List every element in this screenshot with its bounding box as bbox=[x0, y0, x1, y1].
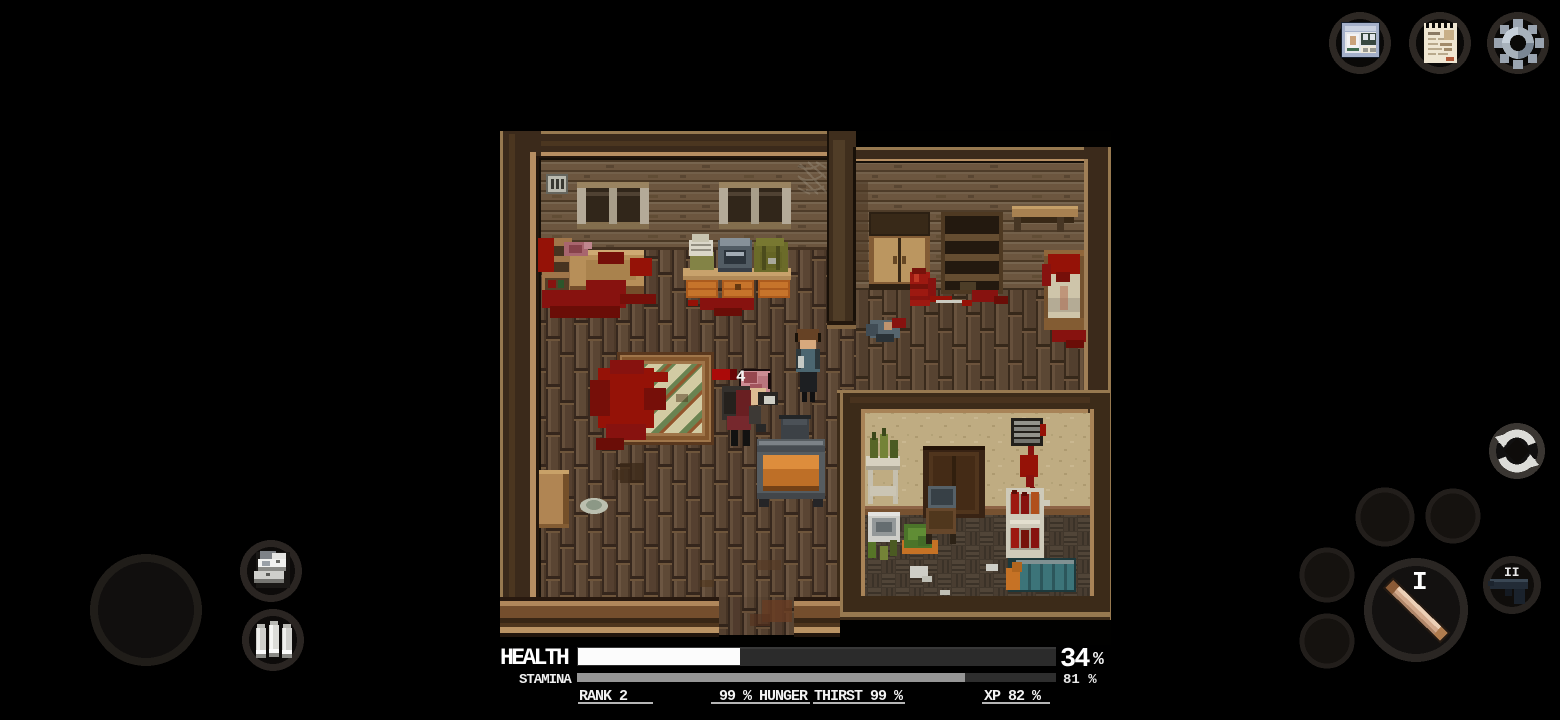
svg-text:STAMINA: STAMINA bbox=[519, 672, 572, 688]
svg-text:HEALTH: HEALTH bbox=[500, 645, 569, 671]
svg-text:I: I bbox=[1412, 567, 1428, 597]
svg-text:34: 34 bbox=[1060, 645, 1090, 675]
svg-text:81 %: 81 % bbox=[1063, 672, 1097, 688]
svg-text:%: % bbox=[1093, 650, 1104, 670]
svg-text:II: II bbox=[1504, 565, 1520, 580]
